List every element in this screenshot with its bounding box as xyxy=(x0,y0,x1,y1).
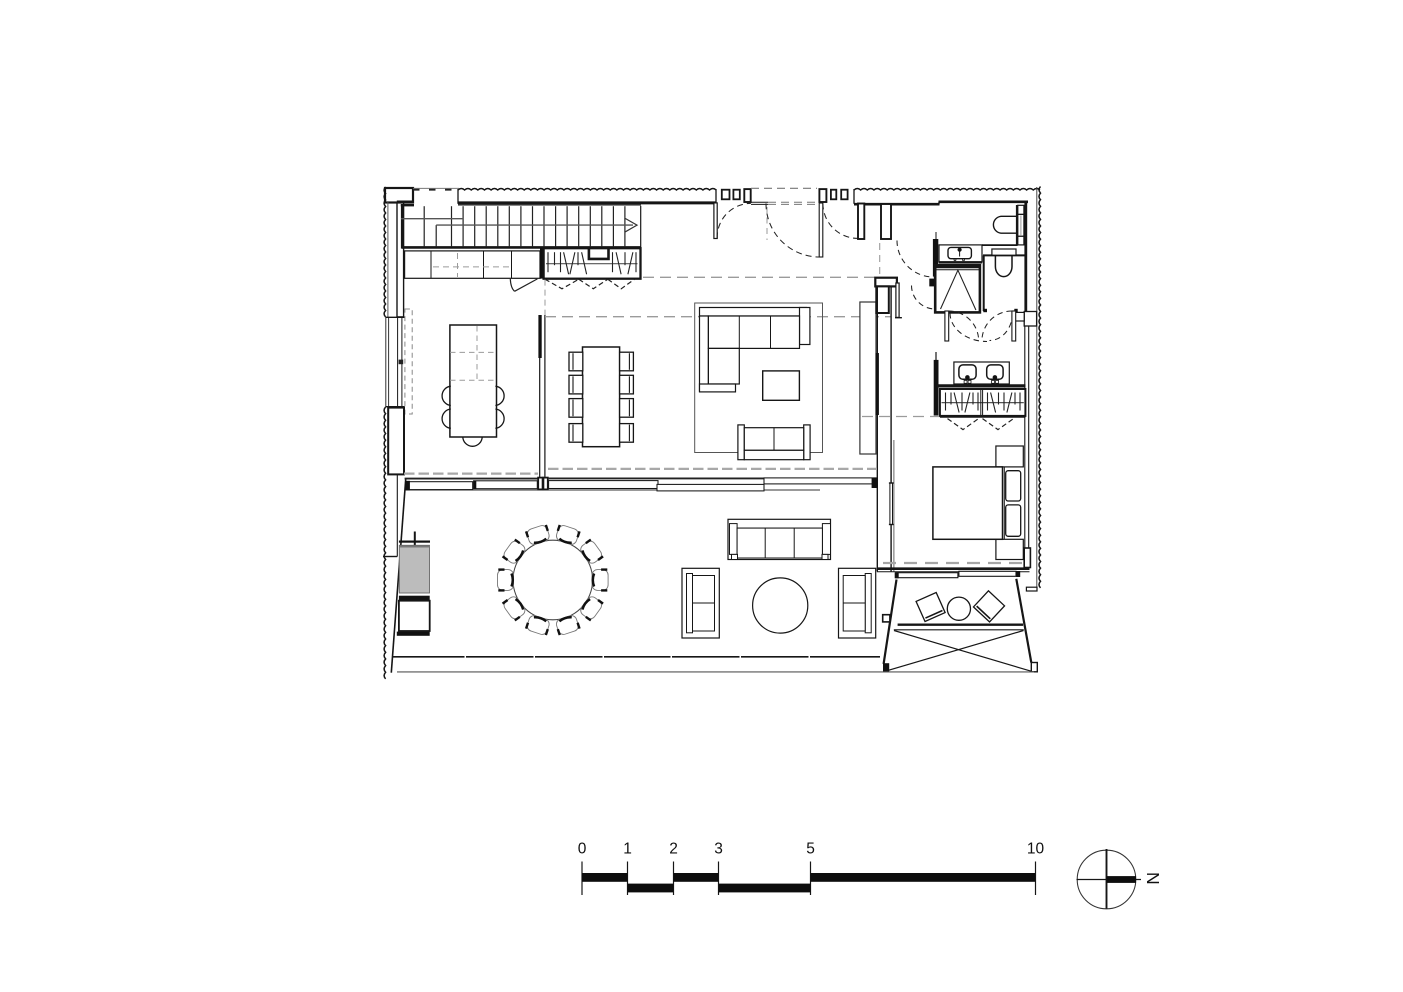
svg-text:0: 0 xyxy=(578,841,587,858)
svg-text:N: N xyxy=(1143,872,1163,885)
svg-text:3: 3 xyxy=(714,841,723,858)
svg-text:1: 1 xyxy=(623,841,632,858)
svg-text:5: 5 xyxy=(806,841,815,858)
svg-text:2: 2 xyxy=(669,841,678,858)
svg-text:10: 10 xyxy=(1027,841,1045,858)
